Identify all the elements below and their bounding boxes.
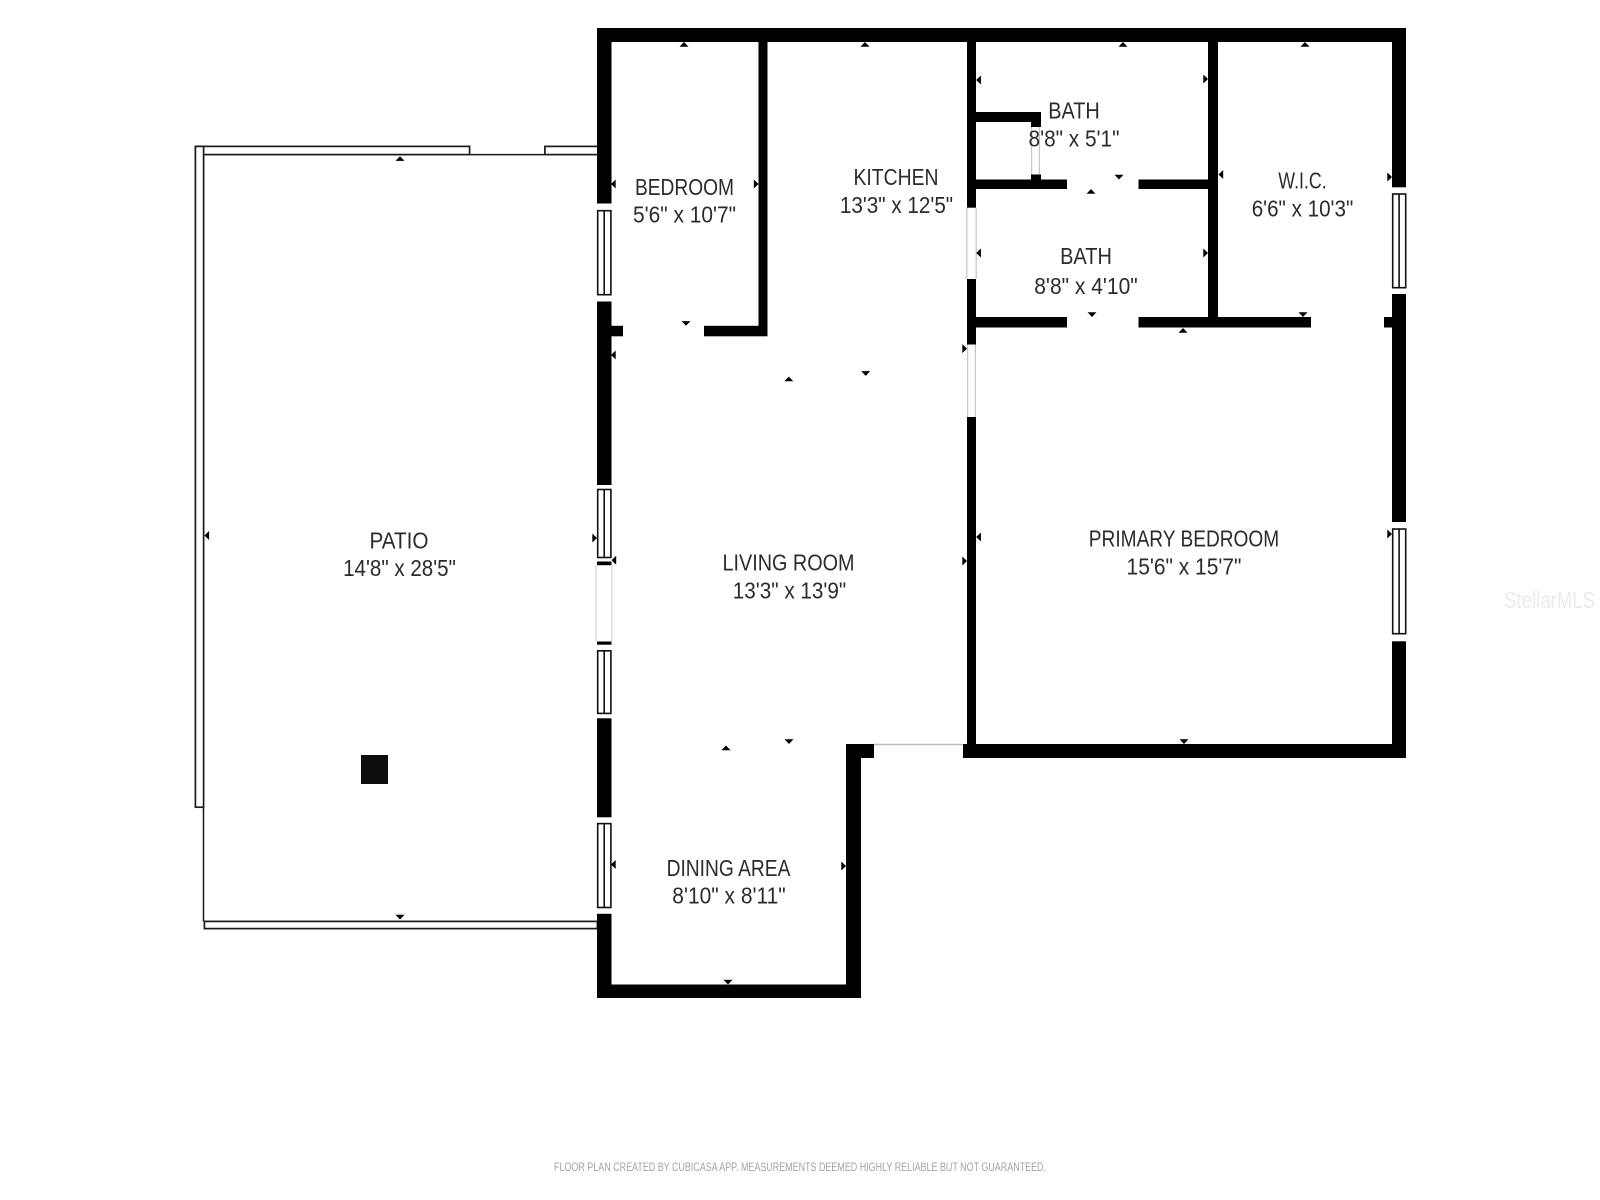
svg-text:8'8" x 4'10": 8'8" x 4'10" [1034,273,1138,299]
svg-text:13'3" x 13'9": 13'3" x 13'9" [733,578,846,604]
svg-text:8'8" x 5'1": 8'8" x 5'1" [1029,126,1120,152]
svg-text:8'10" x 8'11": 8'10" x 8'11" [672,882,785,908]
svg-text:6'6" x 10'3": 6'6" x 10'3" [1252,196,1354,222]
svg-text:14'8" x 28'5": 14'8" x 28'5" [343,555,456,581]
svg-text:5'6" x 10'7": 5'6" x 10'7" [633,202,736,228]
svg-text:BEDROOM: BEDROOM [635,174,734,200]
svg-text:LIVING ROOM: LIVING ROOM [723,550,855,576]
svg-text:BATH: BATH [1048,98,1100,124]
svg-text:KITCHEN: KITCHEN [854,164,939,190]
svg-text:BATH: BATH [1060,243,1112,269]
svg-text:StellarMLS: StellarMLS [1504,587,1595,613]
svg-text:PATIO: PATIO [369,528,428,554]
svg-text:W.I.C.: W.I.C. [1278,168,1326,194]
svg-text:PRIMARY BEDROOM: PRIMARY BEDROOM [1089,526,1279,552]
svg-text:15'6" x 15'7": 15'6" x 15'7" [1127,554,1242,580]
svg-text:13'3" x 12'5": 13'3" x 12'5" [840,192,953,218]
svg-text:DINING AREA: DINING AREA [667,855,791,881]
svg-text:FLOOR PLAN CREATED BY CUBICASA: FLOOR PLAN CREATED BY CUBICASA APP. MEAS… [554,1162,1046,1174]
